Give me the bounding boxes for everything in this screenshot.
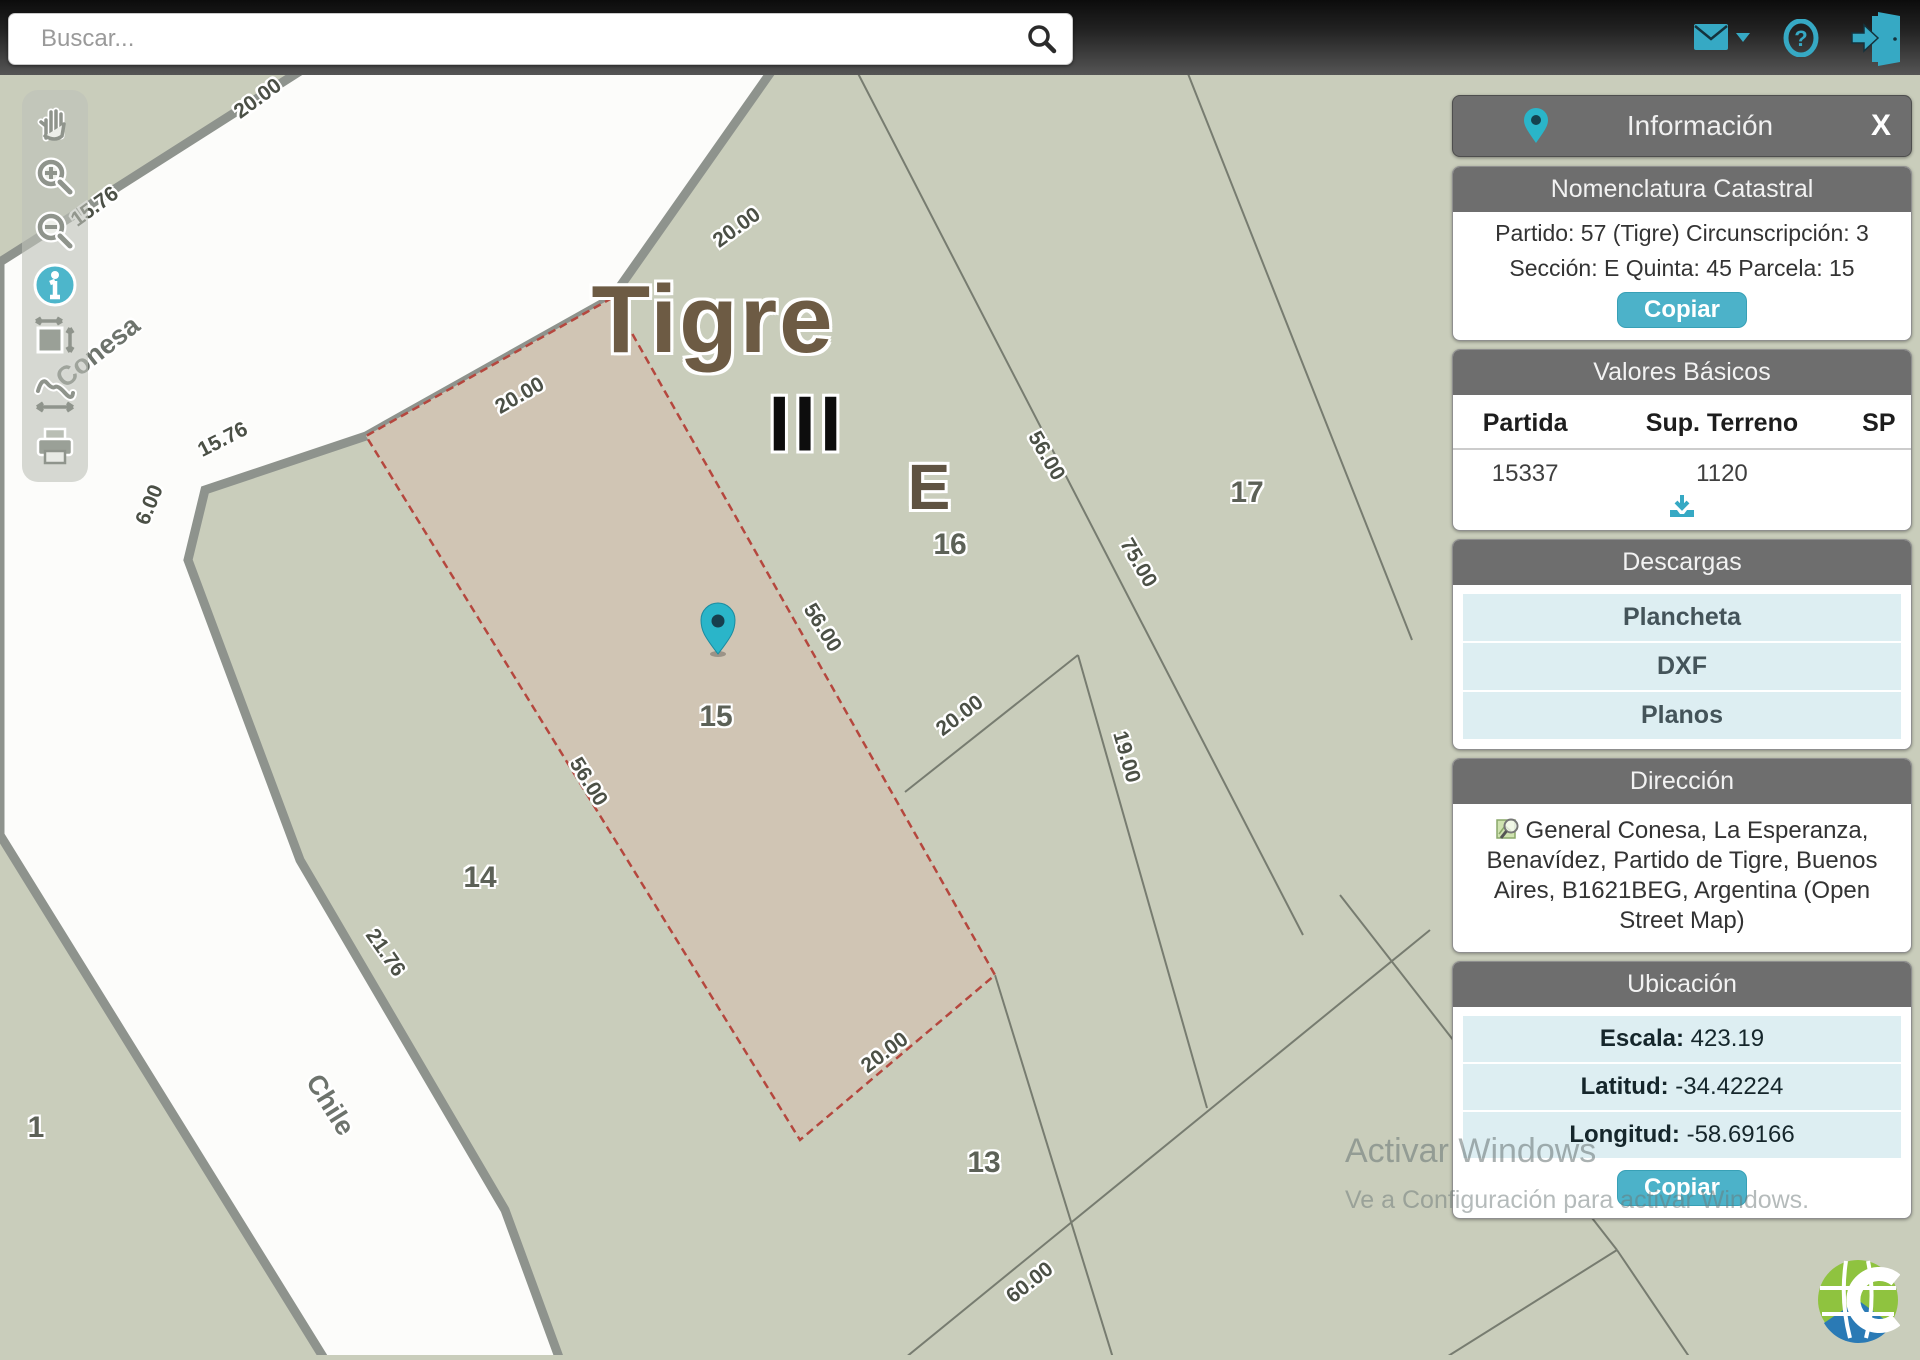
- top-bar: ?: [0, 0, 1920, 75]
- globe-logo-icon: [1816, 1248, 1900, 1352]
- direccion-card: Dirección General Conesa, La Esperanza, …: [1452, 758, 1912, 953]
- ubicacion-card: Ubicación Escala: 423.19Latitud: -34.422…: [1452, 961, 1912, 1219]
- pan-tool-button[interactable]: [29, 98, 81, 148]
- location-row: Latitud: -34.42224: [1463, 1064, 1901, 1112]
- descargas-header: Descargas: [1453, 540, 1911, 585]
- search-icon: [1026, 23, 1058, 55]
- location-row: Longitud: -58.69166: [1463, 1112, 1901, 1160]
- map-toolbar: [22, 90, 88, 482]
- info-panel-header: Información X: [1452, 95, 1912, 157]
- messages-menu-button[interactable]: [1694, 21, 1752, 55]
- info-panel: Información X Nomenclatura Catastral Par…: [1452, 95, 1912, 1227]
- download-option[interactable]: Plancheta: [1463, 594, 1901, 643]
- download-option[interactable]: Planos: [1463, 692, 1901, 739]
- close-button[interactable]: X: [1851, 109, 1911, 143]
- download-values-button[interactable]: [1453, 492, 1911, 530]
- download-icon: [1668, 494, 1696, 520]
- nomenclatura-header: Nomenclatura Catastral: [1453, 167, 1911, 212]
- topbar-actions: ?: [1694, 0, 1904, 75]
- help-icon: ?: [1782, 19, 1820, 57]
- info-tool-button[interactable]: [29, 260, 81, 310]
- hand-icon: [34, 102, 76, 144]
- search-box: [8, 13, 1073, 65]
- zoom-out-tool-button[interactable]: [29, 206, 81, 256]
- extent-icon: [32, 314, 78, 364]
- valores-header: Valores Básicos: [1453, 350, 1911, 395]
- logout-icon: [1850, 10, 1904, 66]
- osm-map-icon: [1496, 817, 1522, 841]
- descargas-card: Descargas PlanchetaDXFPlanos: [1452, 539, 1912, 750]
- valores-card: Valores Básicos PartidaSup. TerrenoSP 15…: [1452, 349, 1912, 531]
- nomenclatura-line2: Sección: E Quinta: 45 Parcela: 15: [1453, 255, 1911, 282]
- table-row: 153371120: [1453, 449, 1911, 492]
- ubicacion-header: Ubicación: [1453, 962, 1911, 1007]
- caret-down-icon: [1736, 33, 1750, 42]
- valores-header-row: PartidaSup. TerrenoSP: [1453, 401, 1911, 449]
- panel-title: Información: [1549, 110, 1851, 142]
- app-logo: [1816, 1248, 1900, 1357]
- direccion-header: Dirección: [1453, 759, 1911, 804]
- download-option[interactable]: DXF: [1463, 643, 1901, 692]
- zoom-out-icon: [33, 209, 77, 253]
- print-tool-button[interactable]: [29, 422, 81, 472]
- pin-icon: [1523, 108, 1549, 144]
- measure-tool-button[interactable]: [29, 368, 81, 418]
- measure-icon: [32, 369, 78, 417]
- extent-tool-button[interactable]: [29, 314, 81, 364]
- nomenclatura-line1: Partido: 57 (Tigre) Circunscripción: 3: [1453, 220, 1911, 247]
- zoom-in-tool-button[interactable]: [29, 152, 81, 202]
- mail-icon: [1694, 21, 1752, 55]
- valores-table: PartidaSup. TerrenoSP 153371120: [1453, 401, 1911, 492]
- logout-button[interactable]: [1850, 10, 1904, 66]
- column-header: Sup. Terreno: [1597, 401, 1846, 449]
- column-header: Partida: [1453, 401, 1597, 449]
- ubicacion-rows: Escala: 423.19Latitud: -34.42224Longitud…: [1453, 1007, 1911, 1160]
- direccion-address: General Conesa, La Esperanza, Benavídez,…: [1487, 817, 1878, 934]
- search-button[interactable]: [1012, 13, 1072, 65]
- search-input[interactable]: [9, 25, 1012, 53]
- info-icon: [32, 262, 78, 308]
- column-header: SP: [1847, 401, 1911, 449]
- zoom-in-icon: [33, 155, 77, 199]
- copy-nomenclatura-button[interactable]: Copiar: [1617, 292, 1747, 328]
- help-button[interactable]: ?: [1782, 19, 1820, 57]
- copy-ubicacion-button[interactable]: Copiar: [1617, 1170, 1747, 1206]
- valores-body: 153371120: [1453, 449, 1911, 492]
- direccion-text: General Conesa, La Esperanza, Benavídez,…: [1453, 804, 1911, 952]
- descargas-list: PlanchetaDXFPlanos: [1453, 585, 1911, 749]
- svg-text:?: ?: [1794, 26, 1807, 51]
- location-row: Escala: 423.19: [1463, 1016, 1901, 1064]
- nomenclatura-card: Nomenclatura Catastral Partido: 57 (Tigr…: [1452, 166, 1912, 341]
- print-icon: [33, 427, 77, 467]
